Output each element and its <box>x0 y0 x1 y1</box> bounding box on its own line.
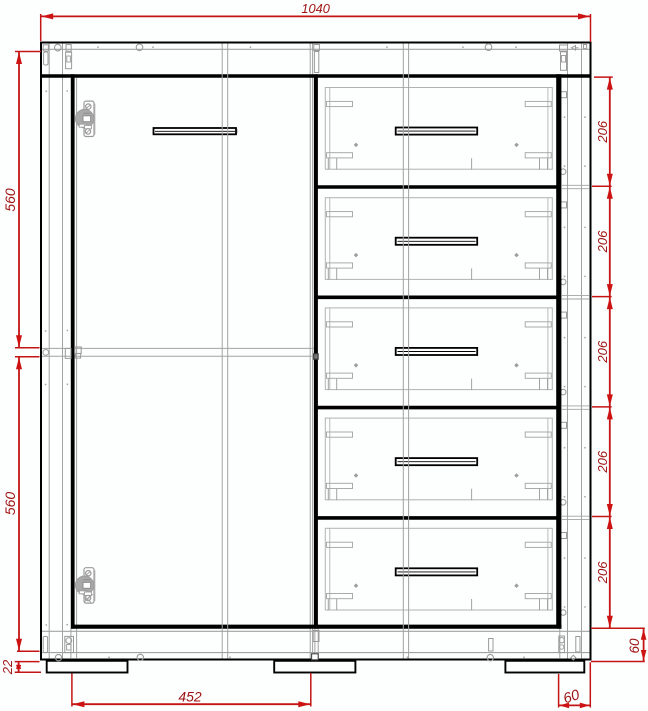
svg-text:206: 206 <box>595 450 610 473</box>
svg-text:206: 206 <box>595 561 610 584</box>
svg-text:560: 560 <box>2 492 18 516</box>
svg-text:60: 60 <box>627 638 642 654</box>
svg-text:206: 206 <box>595 340 610 363</box>
svg-text:560: 560 <box>2 188 18 212</box>
svg-text:206: 206 <box>595 120 610 143</box>
svg-text:1040: 1040 <box>301 1 330 16</box>
svg-text:452: 452 <box>178 689 202 705</box>
svg-text:206: 206 <box>595 230 610 253</box>
svg-text:22: 22 <box>0 659 15 675</box>
